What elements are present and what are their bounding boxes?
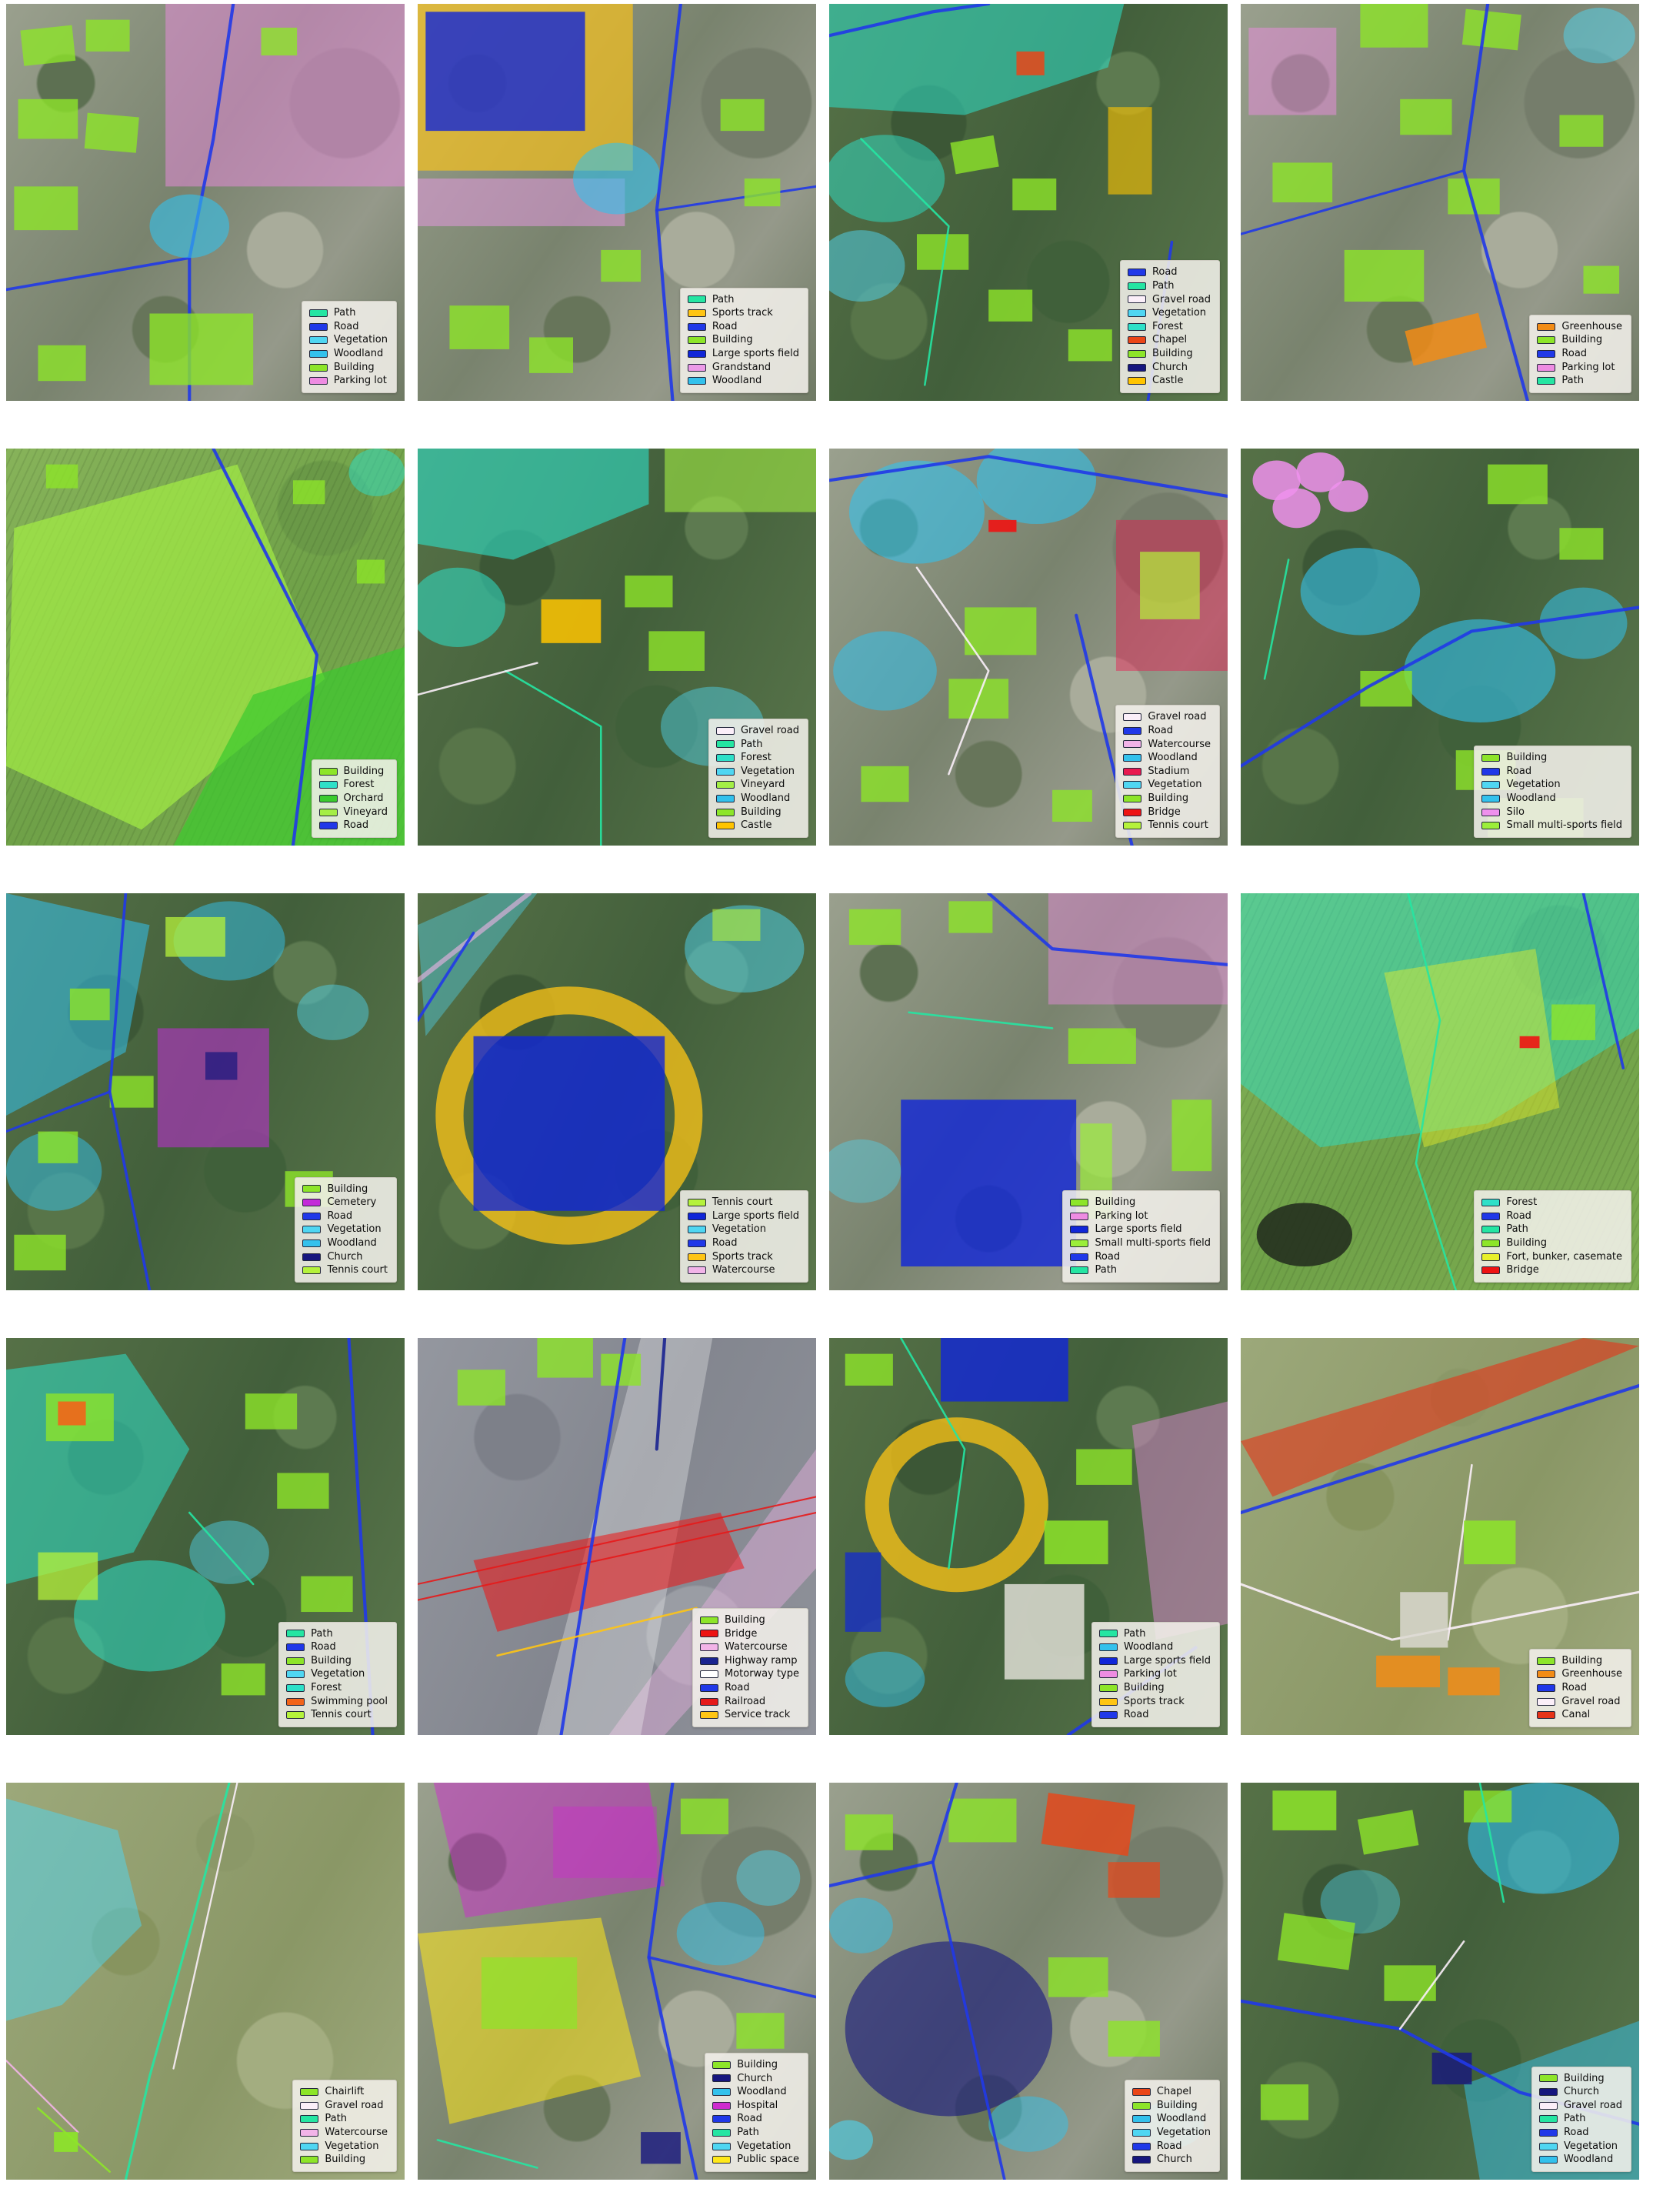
legend-item: Woodland [1132, 2114, 1211, 2124]
patch-road [657, 4, 681, 401]
patch-castle [542, 599, 602, 643]
legend-item: Chapel [1132, 2087, 1211, 2097]
patch-building [845, 1354, 893, 1386]
legend-label-building: Building [741, 807, 782, 818]
legend-item: Church [302, 1252, 388, 1263]
legend-swatch-forest [716, 754, 735, 762]
legend-swatch-watercourse [1123, 740, 1141, 748]
legend-item: Woodland [309, 349, 388, 359]
legend-item: Road [309, 322, 388, 332]
legend-item: Vegetation [1123, 779, 1211, 790]
map-tile-r3c3: BuildingParking lotLarge sports fieldSma… [829, 893, 1228, 1290]
legend-item: Road [688, 322, 799, 332]
legend-swatch-vegetation [1481, 781, 1500, 789]
patch-building [1345, 250, 1425, 302]
legend-swatch-building [1132, 2102, 1151, 2110]
legend-label-woodland: Woodland [737, 2087, 786, 2097]
legend-item: Public space [712, 2154, 799, 2165]
legend-swatch-grandstand [688, 364, 706, 372]
patch-woodland [149, 195, 229, 259]
legend-label-castle: Castle [741, 820, 772, 831]
patch-forest [829, 135, 945, 222]
legend-item: Stadium [1123, 766, 1211, 777]
patch-silo [1272, 489, 1320, 529]
legend-item: Building [1128, 349, 1211, 359]
legend-swatch-church [302, 1253, 321, 1261]
legend-swatch-road [286, 1643, 305, 1651]
legend-label-woodland: Woodland [1148, 752, 1197, 763]
legend-box: RoadPathGravel roadVegetationForestChape… [1120, 260, 1220, 393]
legend-box: PathRoadBuildingVegetationForestSwimming… [278, 1622, 397, 1727]
legend-label-stadium: Stadium [1148, 766, 1189, 777]
legend-item: Path [716, 739, 799, 750]
patch-hospital [553, 1807, 657, 1878]
legend-swatch-vineyard [319, 809, 338, 816]
legend-item: Parking lot [309, 375, 388, 386]
patch-chapel [1041, 1793, 1135, 1856]
patch-large_sports_field [941, 1338, 1068, 1402]
legend-label-building: Building [725, 1615, 765, 1626]
legend-item: Building [1481, 752, 1622, 763]
legend-label-chairlift: Chairlift [325, 2087, 364, 2097]
legend-swatch-tennis_court [1123, 822, 1141, 829]
legend-item: Road [1537, 1683, 1622, 1693]
patch-forest [829, 4, 1124, 115]
legend-swatch-road [319, 822, 338, 829]
legend-label-orchard: Orchard [344, 793, 384, 804]
map-tile-r1c2: PathSports trackRoadBuildingLarge sports… [418, 4, 816, 401]
legend-label-building: Building [311, 1656, 352, 1667]
legend-label-road: Road [1561, 1683, 1587, 1693]
legend-swatch-vegetation [1123, 781, 1141, 789]
legend-label-large_sports_field: Large sports field [1124, 1656, 1211, 1667]
legend-label-woodland: Woodland [741, 793, 790, 804]
map-tile-r4c1: PathRoadBuildingVegetationForestSwimming… [6, 1338, 405, 1735]
map-tile-r4c2: BuildingBridgeWatercourseHighway rampMot… [418, 1338, 816, 1735]
legend-item: Road [712, 2114, 799, 2124]
legend-swatch-public_space [712, 2156, 731, 2164]
legend-swatch-hospital [712, 2102, 731, 2110]
legend-item: Road [1481, 766, 1622, 777]
legend-label-vegetation: Vegetation [311, 1669, 365, 1680]
legend-swatch-watercourse [700, 1643, 718, 1651]
patch-cemetery [158, 1028, 269, 1147]
legend-label-gravel_road: Gravel road [1561, 1697, 1620, 1707]
map-tile-r5c4: BuildingChurchGravel roadPathRoadVegetat… [1241, 1783, 1639, 2180]
legend-item: Cemetery [302, 1197, 388, 1208]
patch-building [18, 99, 78, 139]
legend-label-road: Road [1148, 726, 1173, 736]
legend-label-vegetation: Vegetation [1157, 2127, 1211, 2138]
patch-greenhouse [1448, 1667, 1499, 1695]
legend-box: BuildingParking lotLarge sports fieldSma… [1062, 1190, 1220, 1283]
legend-swatch-bridge [1123, 809, 1141, 816]
legend-swatch-bridge [1481, 1266, 1500, 1274]
legend-swatch-path [300, 2115, 318, 2123]
legend-item: Road [1128, 267, 1211, 278]
legend-item: Building [1099, 1683, 1211, 1693]
legend-swatch-woodland [309, 350, 328, 358]
legend-item: Parking lot [1070, 1211, 1211, 1222]
legend-label-building: Building [1561, 1656, 1602, 1667]
legend-label-church: Church [1157, 2154, 1192, 2165]
legend-item: Vegetation [286, 1669, 388, 1680]
legend-swatch-road [700, 1684, 718, 1692]
legend-label-grandstand: Grandstand [712, 362, 771, 373]
legend-swatch-building [712, 2061, 731, 2069]
patch-building [1272, 162, 1332, 202]
legend-label-watercourse: Watercourse [725, 1642, 788, 1653]
legend-swatch-vegetation [309, 336, 328, 344]
patch-building [20, 25, 75, 66]
legend-swatch-vegetation [302, 1226, 321, 1233]
legend-swatch-building [302, 1185, 321, 1193]
patch-watercourse [6, 2060, 78, 2132]
patch-building [222, 1663, 265, 1695]
patch-building [1462, 9, 1521, 51]
legend-item: Building [1070, 1197, 1211, 1208]
legend-box: ForestRoadPathBuildingFort, bunker, case… [1474, 1190, 1631, 1283]
patch-building [861, 766, 908, 802]
legend-swatch-chapel [1128, 336, 1146, 344]
patch-building [948, 901, 992, 933]
patch-photo [1257, 1203, 1352, 1266]
legend-item: Watercourse [700, 1642, 799, 1653]
legend-swatch-gravel_road [1123, 713, 1141, 721]
patch-canal [1241, 1338, 1639, 1496]
patch-building [38, 1132, 78, 1163]
legend-swatch-building [700, 1616, 718, 1624]
legend-item: Woodland [1123, 752, 1211, 763]
patch-building [1012, 178, 1056, 210]
patch-building [1171, 1099, 1211, 1171]
patch-woodland [977, 449, 1096, 524]
patch-building [1559, 528, 1603, 559]
legend-swatch-parking_lot [309, 377, 328, 385]
legend-label-road: Road [1561, 349, 1587, 359]
legend-box: BuildingGreenhouseRoadGravel roadCanal [1529, 1649, 1631, 1727]
legend-item: Path [300, 2114, 388, 2124]
legend-item: Parking lot [1099, 1669, 1211, 1680]
patch-vegetation [297, 985, 368, 1040]
legend-item: Vegetation [309, 335, 388, 345]
legend-label-hospital: Hospital [737, 2100, 778, 2111]
legend-label-vegetation: Vegetation [327, 1224, 381, 1235]
legend-swatch-vegetation [1539, 2143, 1558, 2150]
legend-label-watercourse: Watercourse [1148, 739, 1211, 750]
legend-item: Woodland [302, 1238, 388, 1249]
legend-swatch-vineyard [716, 781, 735, 789]
legend-item: Church [1128, 362, 1211, 373]
legend-item: Tennis court [286, 1710, 388, 1720]
legend-item: Tennis court [688, 1197, 799, 1208]
legend-swatch-woodland [688, 377, 706, 385]
legend-swatch-bridge [700, 1630, 718, 1637]
legend-swatch-path [286, 1630, 305, 1637]
legend-box: BuildingCemeteryRoadVegetationWoodlandCh… [295, 1177, 397, 1283]
legend-swatch-large_sports_field [1099, 1657, 1118, 1665]
legend-swatch-gravel_road [1128, 295, 1146, 303]
patch-building [849, 909, 901, 945]
legend-item: Large sports field [1070, 1224, 1211, 1235]
legend-swatch-church [712, 2074, 731, 2082]
patch-parking_lot [1048, 893, 1228, 1004]
legend-label-road: Road [1506, 1211, 1531, 1222]
legend-item: Castle [1128, 375, 1211, 386]
legend-box: PathRoadVegetationWoodlandBuildingParkin… [302, 301, 397, 393]
legend-item: Path [1537, 375, 1622, 386]
map-tile-r2c3: Gravel roadRoadWatercourseWoodlandStadiu… [829, 449, 1228, 846]
patch-swimming_pool [58, 1402, 85, 1426]
legend-item: Highway ramp [700, 1656, 799, 1667]
legend-item: Road [1099, 1710, 1211, 1720]
patch-building [736, 2013, 784, 2048]
patch-building [46, 465, 78, 489]
legend-label-building: Building [1564, 2074, 1605, 2084]
legend-item: Building [700, 1615, 799, 1626]
legend-swatch-tennis_court [286, 1711, 305, 1719]
legend-box: GreenhouseBuildingRoadParking lotPath [1529, 315, 1631, 393]
legend-label-road: Road [1564, 2127, 1589, 2138]
patch-forest [418, 449, 648, 559]
map-tile-r3c4: ForestRoadPathBuildingFort, bunker, case… [1241, 893, 1639, 1290]
map-tile-r3c2: Tennis courtLarge sports fieldVegetation… [418, 893, 816, 1290]
patch-building [1052, 790, 1092, 822]
legend-swatch-woodland [1099, 1643, 1118, 1651]
legend-item: Path [1070, 1265, 1211, 1276]
legend-item: Bridge [700, 1629, 799, 1640]
map-tile-r3c1: BuildingCemeteryRoadVegetationWoodlandCh… [6, 893, 405, 1290]
legend-item: Gravel road [716, 726, 799, 736]
patch-building [85, 113, 139, 153]
patch-building [38, 345, 85, 381]
legend-item: Tennis court [1123, 820, 1211, 831]
legend-label-sports_track: Sports track [712, 1252, 773, 1263]
legend-swatch-canal [1537, 1711, 1555, 1719]
legend-item: Building [1537, 335, 1622, 345]
patch-building [1384, 1965, 1435, 2000]
legend-label-service_track: Service track [725, 1710, 790, 1720]
legend-label-vineyard: Vineyard [344, 807, 388, 818]
legend-label-building: Building [1095, 1197, 1135, 1208]
patch-woodland [833, 631, 937, 710]
patch-building [449, 305, 509, 349]
patch-building [845, 1814, 893, 1850]
legend-label-woodland: Woodland [1124, 1642, 1173, 1653]
patch-building [601, 250, 641, 282]
legend-label-vegetation: Vegetation [712, 1224, 766, 1235]
legend-label-vegetation: Vegetation [325, 2141, 378, 2152]
legend-swatch-building [1070, 1199, 1088, 1206]
legend-label-path: Path [325, 2114, 347, 2124]
legend-item: Vegetation [712, 2141, 799, 2152]
legend-swatch-road [1481, 1213, 1500, 1220]
legend-item: Orchard [319, 793, 388, 804]
legend-item: Forest [1481, 1197, 1622, 1208]
patch-building [14, 186, 78, 230]
legend-box: PathSports trackRoadBuildingLarge sports… [680, 288, 808, 393]
patch-photo [1400, 1592, 1448, 1647]
legend-label-tennis_court: Tennis court [712, 1197, 773, 1208]
legend-swatch-road [302, 1213, 321, 1220]
legend-swatch-woodland [1132, 2115, 1151, 2123]
patch-woodland [677, 1902, 765, 1966]
legend-label-building: Building [1506, 1238, 1547, 1249]
legend-label-vineyard: Vineyard [741, 779, 785, 790]
legend-swatch-tennis_court [688, 1199, 706, 1206]
legend-swatch-sports_track [688, 1253, 706, 1261]
legend-label-path: Path [1152, 281, 1175, 292]
legend-swatch-road [1128, 269, 1146, 276]
legend-swatch-gravel_road [300, 2102, 318, 2110]
patch-chairlift [38, 2108, 109, 2172]
legend-item: Greenhouse [1537, 1669, 1622, 1680]
legend-label-path: Path [1506, 1224, 1528, 1235]
legend-swatch-path [1537, 377, 1555, 385]
patch-building [14, 1235, 65, 1270]
legend-label-small_multi_sports_field: Small multi-sports field [1506, 820, 1622, 831]
legend-swatch-building [688, 336, 706, 344]
legend-item: Forest [286, 1683, 388, 1693]
patch-woodland [1404, 619, 1555, 722]
patch-vegetation [829, 230, 905, 302]
legend-item: Hospital [712, 2100, 799, 2111]
legend-swatch-building [1537, 336, 1555, 344]
patch-building [625, 576, 672, 607]
legend-swatch-sports_track [688, 309, 706, 317]
legend-swatch-small_multi_sports_field [1070, 1239, 1088, 1247]
legend-item: Silo [1481, 807, 1622, 818]
legend-label-road: Road [1124, 1710, 1149, 1720]
patch-vegetation [736, 1850, 800, 1906]
map-tile-r4c4: BuildingGreenhouseRoadGravel roadCanal [1241, 1338, 1639, 1735]
legend-swatch-building [1481, 1239, 1500, 1247]
legend-item: Gravel road [300, 2100, 388, 2111]
patch-woodland [988, 2097, 1068, 2152]
patch-path [125, 1783, 229, 2180]
legend-label-building: Building [344, 766, 385, 777]
legend-swatch-vegetation [1128, 309, 1146, 317]
legend-label-woodland: Woodland [1564, 2154, 1613, 2165]
legend-swatch-road [1123, 727, 1141, 735]
legend-swatch-vegetation [300, 2143, 318, 2150]
legend-item: Forest [716, 752, 799, 763]
patch-building [681, 1799, 728, 1834]
legend-item: Sports track [688, 1252, 799, 1263]
legend-label-path: Path [1124, 1629, 1146, 1640]
patch-building [1068, 1028, 1136, 1063]
legend-label-road: Road [1506, 766, 1531, 777]
patch-large_sports_field [474, 1036, 665, 1211]
legend-label-path: Path [1564, 2114, 1586, 2124]
patch-woodland [849, 460, 985, 563]
legend-swatch-vegetation [712, 2143, 731, 2150]
legend-item: Road [1123, 726, 1211, 736]
legend-label-gravel_road: Gravel road [741, 726, 799, 736]
legend-swatch-highway_ramp [700, 1657, 718, 1665]
legend-label-parking_lot: Parking lot [1124, 1669, 1177, 1680]
legend-item: Path [712, 2127, 799, 2138]
legend-swatch-silo [1481, 809, 1500, 816]
legend-item: Gravel road [1539, 2100, 1622, 2111]
legend-label-road: Road [327, 1211, 352, 1222]
legend-label-fort_bunker_casemate: Fort, bunker, casemate [1506, 1252, 1622, 1263]
legend-item: Vegetation [1539, 2141, 1622, 2152]
patch-large_sports_field [425, 12, 585, 131]
legend-swatch-watercourse [300, 2129, 318, 2137]
patch-road [657, 186, 816, 210]
legend-swatch-forest [286, 1684, 305, 1692]
legend-label-large_sports_field: Large sports field [712, 349, 799, 359]
legend-swatch-chapel [1132, 2088, 1151, 2096]
legend-item: Building [309, 362, 388, 373]
legend-label-building: Building [1148, 793, 1188, 804]
legend-label-large_sports_field: Large sports field [1095, 1224, 1181, 1235]
patch-building [1360, 4, 1428, 48]
legend-label-sports_track: Sports track [712, 308, 773, 319]
legend-label-church: Church [1152, 362, 1188, 373]
segmentation-figure-grid: PathRoadVegetationWoodlandBuildingParkin… [0, 0, 1673, 2180]
legend-swatch-path [712, 2129, 731, 2137]
legend-label-watercourse: Watercourse [325, 2127, 388, 2138]
legend-label-woodland: Woodland [1157, 2114, 1206, 2124]
patch-building [1488, 465, 1548, 505]
legend-label-parking_lot: Parking lot [334, 375, 387, 386]
patch-tennis_court [712, 909, 760, 941]
legend-label-road: Road [725, 1683, 750, 1693]
legend-item: Watercourse [300, 2127, 388, 2138]
legend-label-building: Building [1152, 349, 1193, 359]
patch-path [909, 1013, 1052, 1029]
legend-item: Vineyard [319, 807, 388, 818]
legend-box: BuildingChurchGravel roadPathRoadVegetat… [1531, 2067, 1631, 2172]
legend-item: Path [1128, 281, 1211, 292]
legend-swatch-greenhouse [1537, 323, 1555, 331]
legend-item: Railroad [700, 1697, 799, 1707]
map-tile-r1c4: GreenhouseBuildingRoadParking lotPath [1241, 4, 1639, 401]
legend-item: Road [1537, 349, 1622, 359]
legend-label-building: Building [327, 1184, 368, 1195]
legend-label-woodland: Woodland [1506, 793, 1555, 804]
legend-label-forest: Forest [311, 1683, 342, 1693]
legend-label-cemetery: Cemetery [327, 1197, 376, 1208]
patch-building [301, 1576, 352, 1612]
patch-vegetation [829, 2120, 873, 2160]
legend-box: Gravel roadPathForestVegetationVineyardW… [708, 719, 808, 838]
patch-chapel [1108, 1862, 1160, 1897]
legend-swatch-woodland [302, 1239, 321, 1247]
legend-swatch-road [688, 323, 706, 331]
legend-item: Woodland [716, 793, 799, 804]
legend-item: Building [302, 1184, 388, 1195]
legend-item: Motorway type [700, 1669, 799, 1680]
legend-label-road: Road [1152, 267, 1178, 278]
map-tile-r5c2: BuildingChurchWoodlandHospitalRoadPathVe… [418, 1783, 816, 2180]
legend-swatch-swimming_pool [286, 1698, 305, 1706]
legend-swatch-path [1128, 282, 1146, 290]
patch-building [1400, 99, 1451, 135]
legend-item: Large sports field [688, 1211, 799, 1222]
legend-label-road: Road [1095, 1252, 1120, 1263]
legend-swatch-road [1537, 1684, 1555, 1692]
legend-swatch-building [1481, 754, 1500, 762]
legend-label-tennis_court: Tennis court [311, 1710, 372, 1720]
patch-tennis_court [38, 1553, 98, 1600]
legend-label-gravel_road: Gravel road [1148, 712, 1206, 722]
legend-swatch-gravel_road [1539, 2102, 1558, 2110]
legend-label-vegetation: Vegetation [737, 2141, 791, 2152]
legend-item: Vegetation [1481, 779, 1622, 790]
